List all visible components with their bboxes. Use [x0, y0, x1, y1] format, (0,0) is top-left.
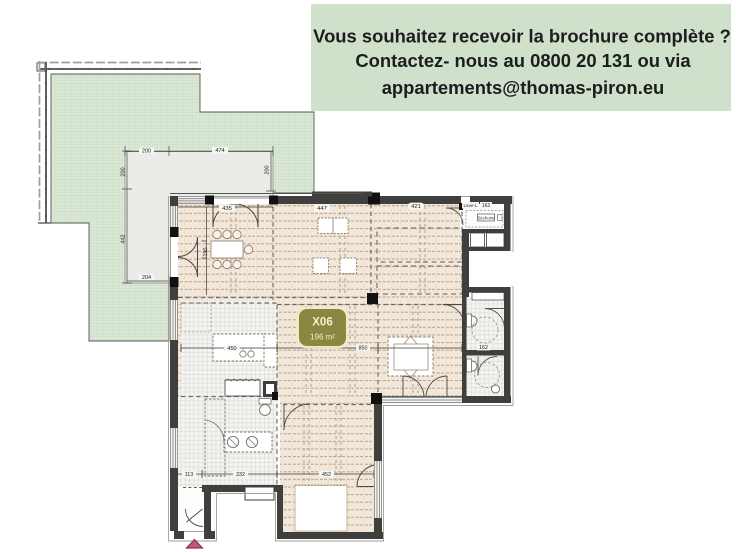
svg-text:332: 332	[236, 472, 245, 478]
svg-text:appartements@thomas-piron.eu: appartements@thomas-piron.eu	[382, 77, 665, 98]
svg-text:Lave-L: Lave-L	[463, 203, 477, 208]
svg-text:Vous souhaitez recevoir la bro: Vous souhaitez recevoir la brochure comp…	[313, 26, 731, 47]
svg-text:447: 447	[317, 206, 327, 212]
svg-text:450: 450	[227, 346, 236, 352]
svg-text:190: 190	[203, 248, 209, 257]
svg-text:162: 162	[479, 345, 488, 351]
svg-text:850: 850	[359, 345, 368, 351]
svg-text:421: 421	[411, 204, 421, 210]
svg-text:204: 204	[142, 275, 151, 281]
svg-text:200: 200	[265, 165, 271, 174]
svg-text:X06: X06	[312, 317, 332, 329]
svg-text:474: 474	[215, 148, 224, 154]
svg-text:442: 442	[121, 234, 127, 243]
svg-text:113: 113	[185, 472, 194, 478]
svg-text:Contactez- nous au 0800 20 131: Contactez- nous au 0800 20 131 ou via	[355, 50, 691, 71]
svg-text:Séchoire: Séchoire	[477, 216, 495, 221]
svg-text:196 m²: 196 m²	[310, 333, 335, 342]
svg-text:452: 452	[322, 472, 331, 478]
svg-text:200: 200	[142, 149, 151, 155]
svg-text:435: 435	[222, 206, 232, 212]
svg-text:162: 162	[482, 203, 491, 209]
svg-text:200: 200	[121, 167, 127, 176]
